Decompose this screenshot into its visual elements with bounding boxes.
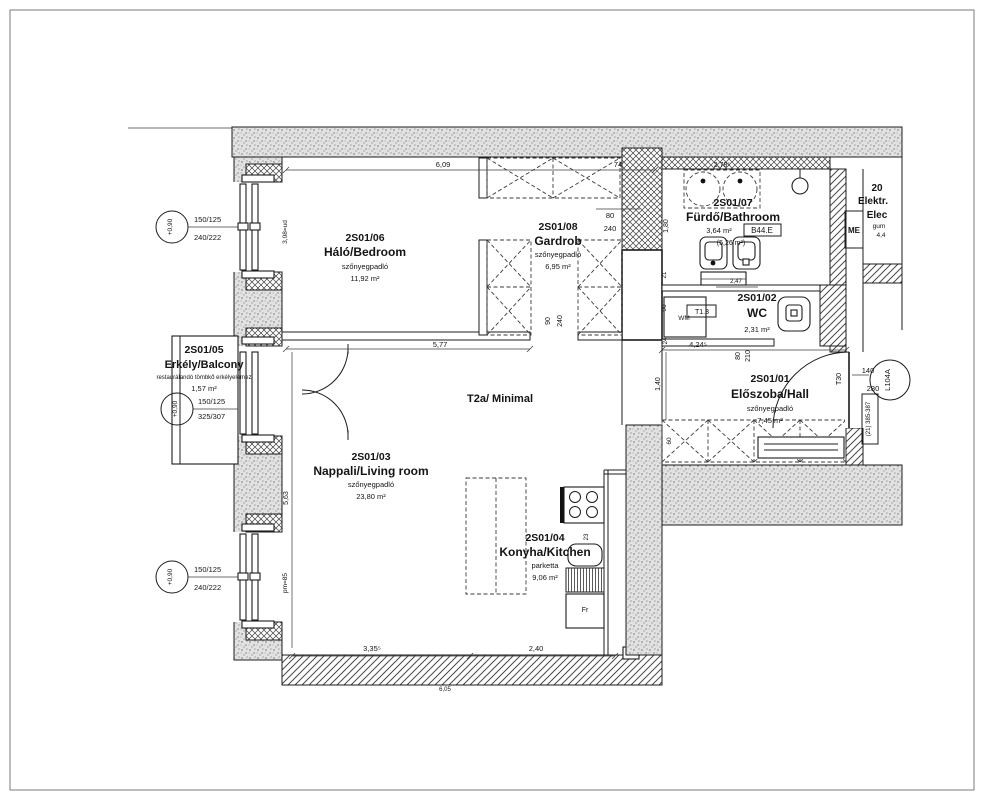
window-bedroom-frame: 240/222 xyxy=(194,233,221,242)
faucet-icon xyxy=(701,179,706,184)
faucet-icon xyxy=(738,179,743,184)
floorplan-drawing: 2S01/06 Háló/Bedroom szőnyegpadló 11,92 … xyxy=(0,0,984,799)
dim-bath-height: 1,80 xyxy=(663,219,670,233)
gardrob-name: Gardrob xyxy=(534,234,581,248)
window-living-frame: 240/222 xyxy=(194,583,221,592)
dim-shelf: 2,47 xyxy=(730,279,742,285)
hall-wardrobe xyxy=(662,420,846,462)
dim-wc-width: 90 xyxy=(661,304,668,312)
bedroom-name: Háló/Bedroom xyxy=(324,245,406,259)
living-floor: szőnyegpadló xyxy=(348,480,394,489)
bathroom-area: 3,64 m² xyxy=(706,226,732,235)
window-bedroom-sill: +0,90 xyxy=(167,218,174,235)
hall-code: 2S01/01 xyxy=(750,373,789,385)
dim-top-right: 74 xyxy=(614,160,622,169)
kitchen-name: Konyha/Kitchen xyxy=(499,545,590,559)
gardrob-pass-width: 90 xyxy=(545,317,552,325)
gardrob-code: 2S01/08 xyxy=(538,221,577,233)
wc-door-height: 210 xyxy=(745,350,752,362)
balcony-name: Erkély/Balcony xyxy=(165,359,245,371)
dim-basin: 2,78⁵ xyxy=(714,162,731,169)
electrical-line3: Elec xyxy=(867,210,888,221)
bathroom-code: 2S01/07 xyxy=(713,197,752,209)
bedroom-floor: szőnyegpadló xyxy=(342,262,388,271)
wc-name: WC xyxy=(747,306,767,320)
wc-door-tag: T1.3 xyxy=(695,309,709,316)
bath-door-height: 240 xyxy=(604,224,617,233)
balcony-area: 1,57 m² xyxy=(191,384,217,393)
bathroom-name: Fürdő/Bathroom xyxy=(686,210,780,224)
window-living-size: 150/125 xyxy=(194,565,221,574)
dim-counter: 23 xyxy=(584,533,590,540)
lamp-icon xyxy=(792,178,808,194)
entry-door-width: 140 xyxy=(862,366,875,375)
living-code: 2S01/03 xyxy=(351,451,390,463)
window-living-note: pm=85 xyxy=(282,573,289,593)
hall-name: Előszoba/Hall xyxy=(731,387,809,401)
balcony-code: 2S01/05 xyxy=(184,344,223,356)
gardrob-floor: szőnyegpadló xyxy=(535,250,581,259)
dim-bed-bottom: 5,77 xyxy=(433,340,448,349)
wc-area: 2,31 m² xyxy=(744,325,770,334)
bedroom-code: 2S01/06 xyxy=(345,232,384,244)
kitchen-floor: parketta xyxy=(531,561,559,570)
living-name: Nappali/Living room xyxy=(313,464,428,478)
dim-wall-b: 24 xyxy=(663,337,669,344)
bedroom-area: 11,92 m² xyxy=(350,274,380,283)
entry-door-tag: T30 xyxy=(836,373,843,385)
balcony-door-sill: +0,90 xyxy=(172,400,179,417)
living-area: 23,80 m² xyxy=(356,492,386,501)
dim-wall-a: 21 xyxy=(662,271,668,278)
hall-area: 7,45 m² xyxy=(757,416,783,425)
wc-code: 2S01/02 xyxy=(737,292,776,304)
wc-door-width: 80 xyxy=(735,352,742,360)
kitchen-code: 2S01/04 xyxy=(525,532,564,544)
fridge-label: Fr xyxy=(582,607,589,614)
entry-door-ref: L104A xyxy=(883,369,892,391)
dim-pass-height: 1,40 xyxy=(655,377,662,391)
dim-bottom-left: 3,35⁵ xyxy=(363,644,381,653)
window-living-sill: +0,90 xyxy=(167,568,174,585)
bathroom-area-gross: (5,26 m²) xyxy=(717,240,745,247)
window-bedroom-note: 3,08=ud xyxy=(282,220,289,244)
washing-machine-label: WM xyxy=(678,315,690,322)
balcony-note: restaurálandó tömbkő erkélyelemez xyxy=(156,375,251,381)
electrical-line5: 4,4 xyxy=(876,232,885,239)
drainer-icon xyxy=(566,568,604,592)
floorplan-sheet: 2S01/06 Háló/Bedroom szőnyegpadló 11,92 … xyxy=(0,0,984,799)
plan-title: T2a/ Minimal xyxy=(467,393,533,405)
me-shaft-label: ME xyxy=(848,226,861,235)
window-bedroom-size: 150/125 xyxy=(194,215,221,224)
balcony-door-frame: 325/307 xyxy=(198,412,225,421)
electrical-line4: gum xyxy=(873,223,886,230)
kitchen-area: 9,06 m² xyxy=(532,573,558,582)
dim-wardrobe: 60 xyxy=(666,437,673,445)
stove-icon xyxy=(564,487,604,523)
hall-floor: szőnyegpadló xyxy=(747,404,793,413)
electrical-line1: 20 xyxy=(871,183,883,194)
entry-door-height: 280 xyxy=(867,384,880,393)
dim-living-height: 5,63 xyxy=(283,491,290,505)
electrical-line2: Elektr. xyxy=(858,196,888,207)
dim-hall-top: 4,24⁵ xyxy=(689,340,707,349)
gardrob-area: 6,95 m² xyxy=(545,262,571,271)
dim-bottom-right: 2,40 xyxy=(529,644,544,653)
bath-door-width: 80 xyxy=(606,211,614,220)
dim-top: 6,09 xyxy=(436,160,451,169)
entry-door-id: (21) 385-387 xyxy=(866,401,872,436)
dim-bottom-total: 6,05 xyxy=(439,687,451,693)
balcony-door-size: 150/125 xyxy=(198,397,225,406)
bathroom-finish-tag: B44.E xyxy=(751,226,773,235)
gardrob-pass-height: 240 xyxy=(557,315,564,327)
